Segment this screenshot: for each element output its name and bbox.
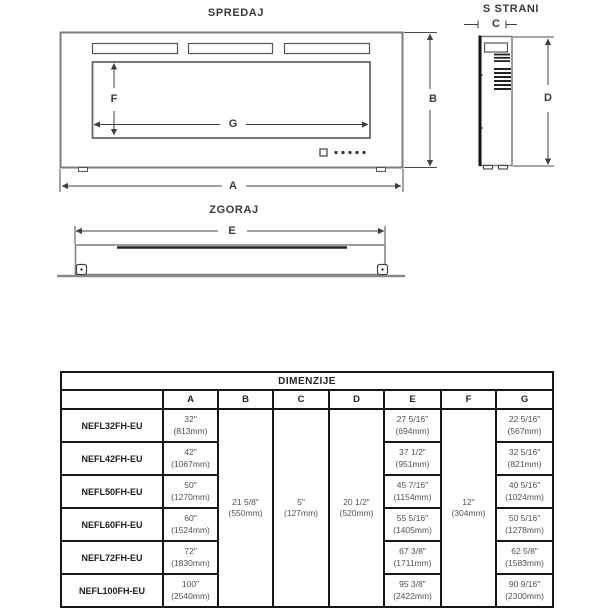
model-name: NEFL100FH-EU — [61, 574, 163, 607]
front-bottom-tab-left — [79, 168, 88, 172]
value-e: 95 3/8" (2422mm) — [384, 574, 441, 607]
side-screw-dot-lower — [480, 127, 482, 129]
value-b-shared: 21 5/8" (550mm) — [218, 409, 273, 607]
dim-label-g: G — [225, 118, 241, 130]
front-vent-slot-1 — [93, 44, 178, 54]
model-name: NEFL72FH-EU — [61, 541, 163, 574]
dim-label-f: F — [106, 93, 122, 105]
model-name: NEFL32FH-EU — [61, 409, 163, 442]
dim-label-a: A — [225, 180, 241, 192]
value-a: 50" (1270mm) — [163, 475, 218, 508]
value-d-shared: 20 1/2" (520mm) — [329, 409, 384, 607]
value-a: 100" (2540mm) — [163, 574, 218, 607]
value-a: 32" (813mm) — [163, 409, 218, 442]
col-header-c: C — [273, 390, 329, 409]
fireplace-dimension-sheet: SPREDAJ S STRANI ZGORAJ F G B A C D E DI… — [0, 0, 615, 615]
value-e: 45 7/16" (1154mm) — [384, 475, 441, 508]
power-button-icon — [320, 149, 327, 156]
value-g: 32 5/16" (821mm) — [496, 442, 553, 475]
col-header-a: A — [163, 390, 218, 409]
value-g: 62 5/8" (1583mm) — [496, 541, 553, 574]
model-name: NEFL60FH-EU — [61, 508, 163, 541]
table-row: NEFL32FH-EU 32" (813mm) 21 5/8" (550mm) … — [61, 409, 553, 442]
col-header-b: B — [218, 390, 273, 409]
dim-label-e: E — [224, 225, 240, 237]
table-title: DIMENZIJE — [61, 372, 553, 390]
side-hatch-upper — [494, 55, 510, 62]
value-g: 50 5/16" (1278mm) — [496, 508, 553, 541]
value-e: 27 5/16" (694mm) — [384, 409, 441, 442]
value-g: 90 9/16" (2300mm) — [496, 574, 553, 607]
side-view-title: S STRANI — [482, 3, 540, 15]
col-header-d: D — [329, 390, 384, 409]
mount-bracket-right — [378, 265, 388, 275]
value-g: 40 5/16" (1024mm) — [496, 475, 553, 508]
col-header-e: E — [384, 390, 441, 409]
col-header-f: F — [441, 390, 496, 409]
col-header-model — [61, 390, 163, 409]
value-a: 60" (1524mm) — [163, 508, 218, 541]
side-top-vent — [485, 43, 508, 52]
front-vent-slot-2 — [189, 44, 273, 54]
value-e: 37 1/2" (951mm) — [384, 442, 441, 475]
side-hatch-lower — [494, 69, 511, 89]
value-c-shared: 5" (127mm) — [273, 409, 329, 607]
top-body — [76, 245, 386, 275]
dimensions-table: DIMENZIJE A B C D E F G NEFL32FH-EU 32" … — [60, 371, 554, 608]
drawing-layer — [0, 0, 615, 340]
value-g: 22 5/16" (567mm) — [496, 409, 553, 442]
value-f-shared: 12" (304mm) — [441, 409, 496, 607]
front-view-title: SPREDAJ — [207, 7, 265, 19]
value-e: 67 3/8" (1711mm) — [384, 541, 441, 574]
value-a: 72" (1830mm) — [163, 541, 218, 574]
side-foot-right — [499, 166, 508, 170]
mount-bracket-left — [77, 265, 87, 275]
value-a: 42" (1067mm) — [163, 442, 218, 475]
model-name: NEFL42FH-EU — [61, 442, 163, 475]
side-screw-dot-upper — [480, 74, 482, 76]
dim-label-d: D — [540, 92, 556, 104]
side-foot-left — [484, 166, 493, 170]
col-header-g: G — [496, 390, 553, 409]
front-vent-slot-3 — [285, 44, 370, 54]
front-bottom-tab-right — [377, 168, 386, 172]
dim-label-c: C — [488, 18, 504, 30]
control-dots-icon — [334, 151, 365, 154]
dim-label-b: B — [425, 93, 441, 105]
top-view-title: ZGORAJ — [205, 204, 263, 216]
value-e: 55 5/16" (1405mm) — [384, 508, 441, 541]
model-name: NEFL50FH-EU — [61, 475, 163, 508]
front-view — [60, 33, 437, 193]
side-body — [480, 37, 512, 166]
